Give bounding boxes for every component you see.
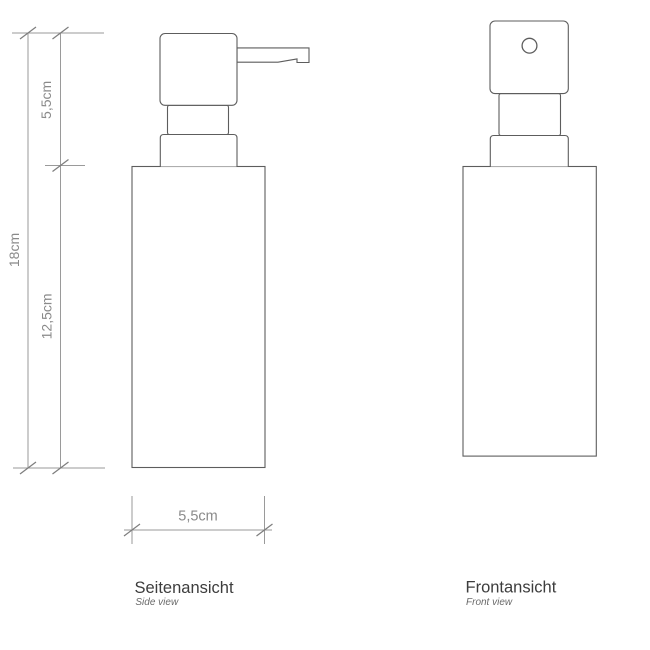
svg-text:5,5cm: 5,5cm: [178, 509, 218, 525]
svg-text:Side view: Side view: [135, 597, 179, 608]
svg-text:Front view: Front view: [466, 597, 513, 608]
svg-text:5,5cm: 5,5cm: [38, 81, 54, 119]
svg-text:Seitenansicht: Seitenansicht: [135, 579, 234, 597]
svg-text:12,5cm: 12,5cm: [39, 293, 55, 339]
svg-text:18cm: 18cm: [6, 233, 22, 267]
svg-text:Frontansicht: Frontansicht: [466, 579, 557, 597]
